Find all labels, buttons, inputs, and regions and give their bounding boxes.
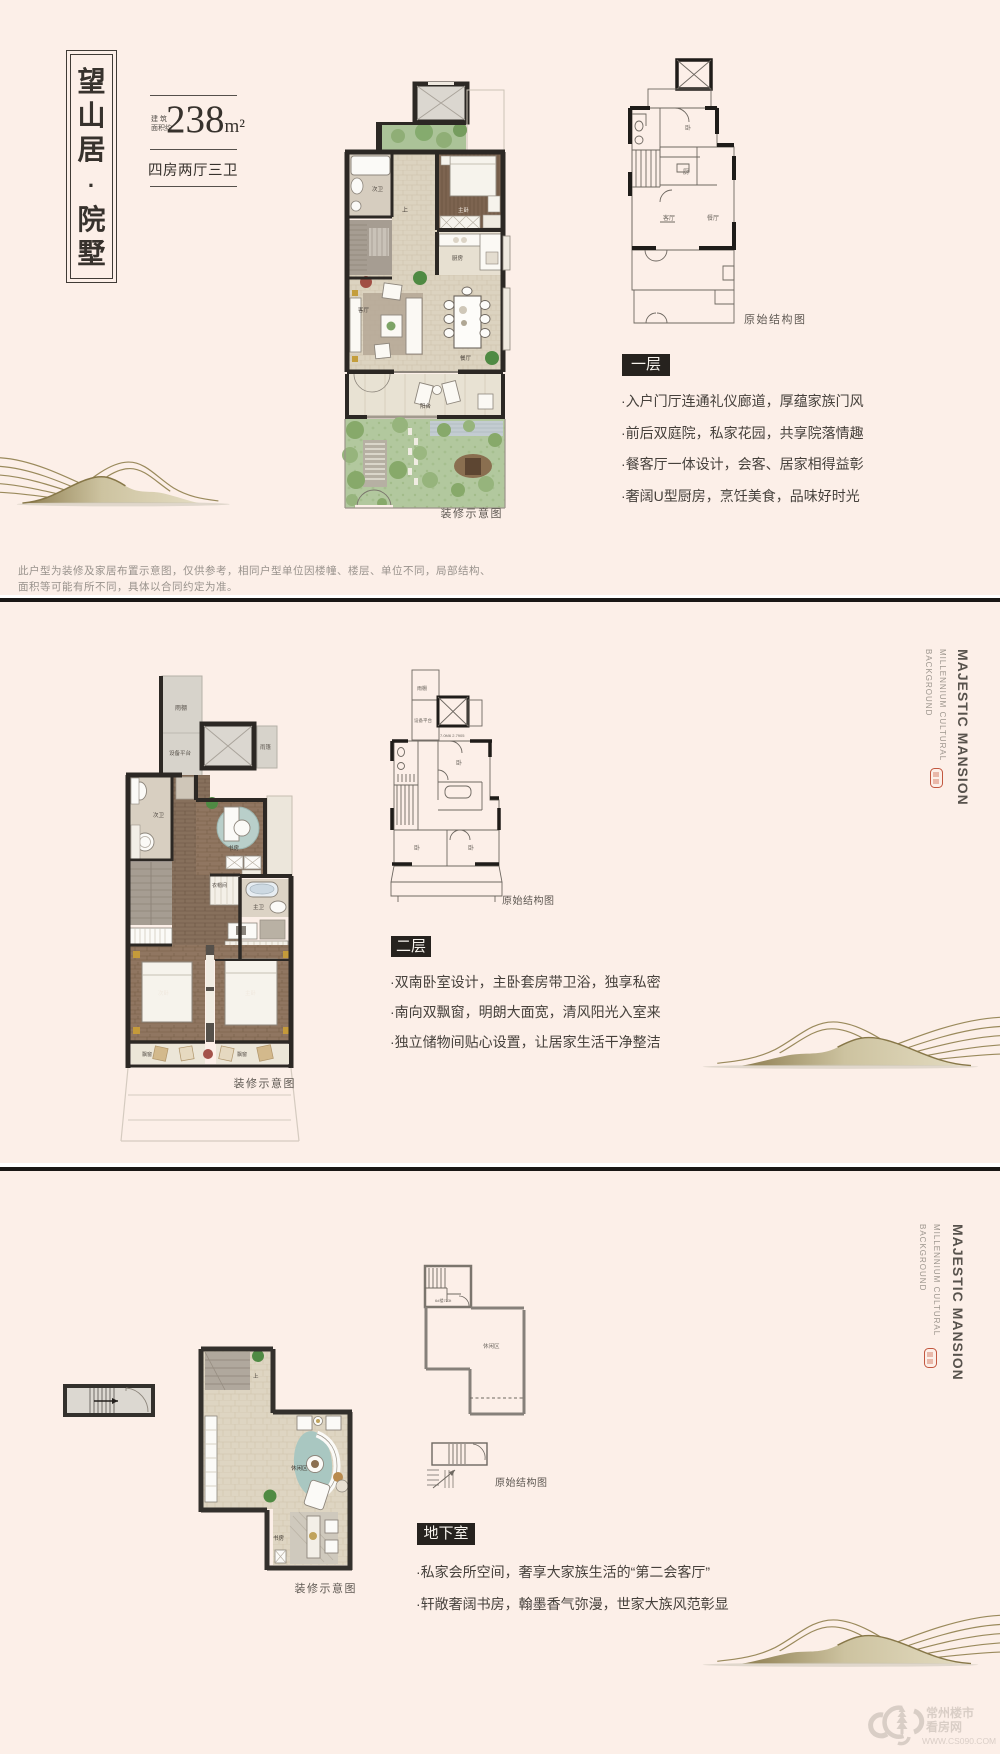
svg-text:次卫: 次卫 <box>372 185 384 193</box>
svg-text:卧: 卧 <box>685 124 691 132</box>
svg-text:雨棚: 雨棚 <box>175 704 187 712</box>
svg-text:休闲区: 休闲区 <box>291 1464 308 1472</box>
svg-text:设备平台: 设备平台 <box>414 717 432 724</box>
svg-text:雨篷: 雨篷 <box>260 743 272 751</box>
svg-text:装修示意图: 装修示意图 <box>441 506 504 520</box>
svg-text:餐厅: 餐厅 <box>460 354 472 362</box>
svg-text:厨房: 厨房 <box>452 254 464 262</box>
svg-text:阳台: 阳台 <box>420 402 432 410</box>
svg-text:次卫: 次卫 <box>153 811 165 819</box>
svg-text:看房网: 看房网 <box>926 1719 962 1734</box>
svg-text:主卫: 主卫 <box>253 903 265 911</box>
svg-text:卧: 卧 <box>468 844 474 852</box>
svg-text:主卧: 主卧 <box>458 206 470 214</box>
svg-text:上: 上 <box>253 1372 259 1380</box>
svg-text:客厅: 客厅 <box>663 214 675 222</box>
svg-text:主卧: 主卧 <box>245 989 257 997</box>
svg-text:衣帽间: 衣帽间 <box>212 882 227 889</box>
svg-text:飘窗: 飘窗 <box>142 1051 152 1058</box>
svg-text:餐厅: 餐厅 <box>707 214 719 222</box>
svg-text:上: 上 <box>402 206 408 214</box>
svg-text:飘窗: 飘窗 <box>237 1051 247 1058</box>
svg-text:常州楼市: 常州楼市 <box>926 1705 974 1720</box>
svg-text:装修示意图: 装修示意图 <box>295 1581 358 1595</box>
svg-text:装修示意图: 装修示意图 <box>234 1076 297 1090</box>
svg-text:原始结构图: 原始结构图 <box>495 1476 548 1489</box>
svg-text:卧: 卧 <box>414 844 420 852</box>
svg-text:6#楼723t: 6#楼723t <box>435 1297 452 1303</box>
svg-text:书房: 书房 <box>228 844 240 852</box>
svg-text:雨棚: 雨棚 <box>417 685 427 692</box>
svg-text:WWW.CS090.COM: WWW.CS090.COM <box>922 1736 996 1746</box>
svg-text:次卧: 次卧 <box>158 989 170 997</box>
svg-text:原始结构图: 原始结构图 <box>744 312 807 326</box>
svg-text:原始结构图: 原始结构图 <box>502 894 555 907</box>
svg-text:设备平台: 设备平台 <box>169 749 192 757</box>
svg-text:休闲区: 休闲区 <box>483 1342 500 1350</box>
svg-text:厨: 厨 <box>683 169 689 176</box>
svg-text:客厅: 客厅 <box>358 306 370 314</box>
svg-text:7.0M6 2.7905: 7.0M6 2.7905 <box>440 733 465 738</box>
svg-text:书房: 书房 <box>273 1534 285 1542</box>
svg-text:卧: 卧 <box>456 759 462 767</box>
